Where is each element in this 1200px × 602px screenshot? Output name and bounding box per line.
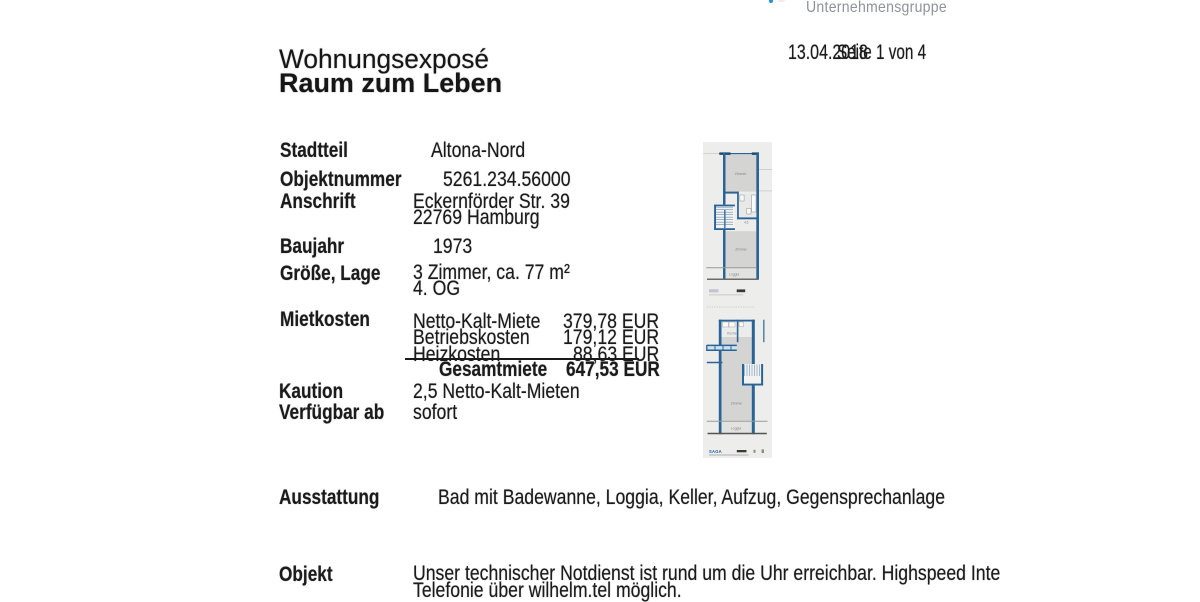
- svg-text:Loggia: Loggia: [730, 426, 740, 430]
- svg-text:Zimmer: Zimmer: [734, 172, 746, 176]
- svg-text:Loggia: Loggia: [729, 272, 739, 276]
- svg-text:Zimmer: Zimmer: [735, 247, 747, 251]
- svg-text:Zimmer: Zimmer: [730, 401, 742, 405]
- svg-text:4,6: 4,6: [744, 220, 749, 224]
- svg-text:SAGA: SAGA: [709, 449, 722, 454]
- svg-text:Küche: Küche: [727, 331, 737, 335]
